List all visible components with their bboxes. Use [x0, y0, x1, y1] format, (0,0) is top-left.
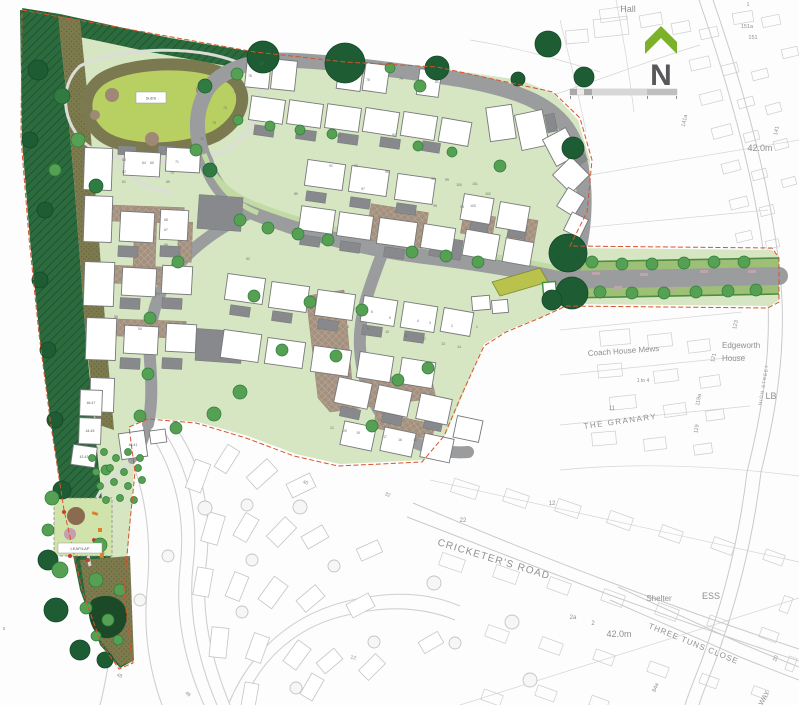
plot-number: 72 — [200, 137, 204, 141]
tree-icon — [97, 483, 104, 490]
base-building — [763, 549, 786, 566]
play-equipment — [98, 528, 102, 532]
plot-number: 17 — [383, 435, 387, 439]
base-building — [721, 160, 741, 174]
refuge-marking — [614, 286, 622, 289]
os-map-label: 119a — [695, 393, 703, 407]
outline-tree-icon — [328, 560, 340, 572]
parcel-line — [430, 480, 799, 562]
site-label: 46-47 — [87, 401, 96, 405]
plot-number: 2 — [451, 324, 453, 328]
plot-number: 6 — [371, 310, 373, 314]
tree-icon — [125, 483, 132, 490]
base-road-edge — [413, 503, 799, 649]
proposed-house — [310, 345, 351, 376]
tree-icon — [207, 407, 221, 421]
tree-icon — [422, 362, 434, 374]
tree-icon — [406, 246, 418, 258]
plot-number: 63 — [122, 158, 126, 162]
plot-number: 79 — [399, 77, 403, 81]
tree-icon — [137, 455, 144, 462]
refuge-marking — [748, 270, 756, 273]
base-building — [761, 14, 781, 28]
tree-icon — [626, 287, 638, 299]
plot-number: 70 — [170, 171, 174, 175]
proposed-house — [83, 261, 115, 306]
plot-number: 9 — [367, 327, 369, 331]
base-building — [591, 431, 616, 446]
estate-road — [163, 430, 217, 705]
plot-number: 96 — [385, 170, 389, 174]
parking-bay — [118, 245, 139, 257]
plot-number: 1 — [476, 325, 478, 329]
estate-building — [233, 512, 259, 542]
north-arrow-letter: N — [650, 59, 672, 92]
proposed-house — [248, 96, 285, 124]
tree-icon — [292, 228, 304, 240]
proposed-house — [471, 295, 490, 311]
plot-number: 10 — [385, 330, 389, 334]
estate-building — [418, 631, 444, 653]
os-map-label: LB — [765, 391, 776, 401]
tree-icon — [89, 179, 103, 193]
tree-icon — [45, 491, 59, 505]
mud-patch — [105, 88, 119, 102]
base-building — [729, 196, 749, 210]
tree-icon — [139, 477, 146, 484]
proposed-house — [356, 352, 394, 383]
os-map-label: 2 — [591, 621, 595, 627]
estate-road — [242, 609, 455, 705]
tree-icon — [494, 160, 506, 172]
base-building — [735, 230, 753, 242]
tree-icon — [231, 68, 243, 80]
plot-number: 89 — [294, 192, 298, 196]
tree-icon — [586, 256, 598, 268]
play-mound — [68, 554, 72, 558]
plot-number: 74 — [223, 106, 227, 110]
site-label: 44-45 — [86, 429, 95, 433]
mature-tree-icon — [542, 290, 562, 310]
os-map-label: 151 — [748, 35, 757, 41]
proposed-house — [496, 202, 530, 233]
tree-icon — [678, 257, 690, 269]
plot-number: 76 — [248, 74, 252, 78]
mature-tree-icon — [425, 56, 449, 80]
os-map-label: 12 — [350, 655, 357, 662]
plot-number: 103 — [470, 204, 476, 208]
plot-number: 93 — [354, 164, 358, 168]
proposed-house — [324, 104, 361, 132]
base-building — [711, 124, 733, 140]
tree-icon — [52, 562, 68, 578]
plot-number: 97 — [361, 187, 365, 191]
parcel-line — [553, 45, 700, 95]
proposed-house — [149, 429, 167, 444]
proposed-house — [121, 267, 156, 297]
base-building — [647, 661, 670, 678]
outline-tree-icon — [449, 637, 461, 649]
os-map-label: 46 — [184, 690, 192, 698]
base-building — [751, 168, 768, 181]
tree-icon — [144, 312, 156, 324]
tree-icon — [111, 479, 118, 486]
tree-icon — [750, 284, 762, 296]
outline-tree-icon — [236, 606, 248, 618]
proposed-house — [376, 217, 417, 248]
tree-icon — [121, 469, 128, 476]
os-map-label: 12 — [549, 501, 556, 507]
plot-number: 99 — [445, 178, 449, 182]
base-building — [732, 10, 754, 24]
plot-number: 55 — [114, 315, 118, 319]
os-map-label: 42.0m — [747, 143, 772, 153]
base-building — [699, 90, 723, 106]
estate-building — [245, 633, 269, 664]
tree-icon — [89, 455, 96, 462]
plot-number: 53 — [156, 292, 160, 296]
scale-bar-segment — [584, 89, 592, 95]
estate-building — [359, 654, 386, 681]
os-map-label: CRICKETER'S ROAD — [436, 537, 551, 582]
proposed-house — [314, 289, 355, 320]
plot-number: 8 — [347, 325, 349, 329]
os-map-label: 151a — [741, 24, 754, 30]
plot-number: 13 — [441, 342, 445, 346]
estate-building — [225, 572, 249, 602]
plot-number: 4 — [417, 319, 419, 323]
proposed-house — [486, 104, 516, 141]
parcel-line — [560, 356, 746, 375]
plot-number: 91 — [329, 164, 333, 168]
proposed-house — [502, 238, 534, 266]
os-map-label: 121 — [710, 353, 718, 363]
proposed-house — [161, 265, 192, 295]
base-building — [643, 437, 666, 452]
tree-icon — [330, 350, 342, 362]
estate-building — [241, 682, 259, 705]
os-map-label: 119 — [693, 424, 700, 434]
plot-number: 101 — [472, 182, 478, 186]
os-map-label: 1 to 4 — [637, 378, 650, 384]
site-plan-drawing: SuDSLEAP/LAP46-4744-4542-4340-4161626364… — [0, 0, 799, 705]
base-building — [607, 510, 634, 530]
plot-number: 61 — [122, 180, 126, 184]
os-map-label: Hall — [620, 4, 636, 14]
proposed-house — [438, 118, 472, 147]
base-building — [779, 595, 793, 613]
play-mound — [62, 510, 66, 514]
outline-tree-icon — [246, 554, 258, 566]
plot-number: 78 — [366, 78, 370, 82]
tree-icon — [135, 465, 142, 472]
base-building — [781, 46, 799, 58]
base-building — [653, 369, 678, 384]
tree-icon — [738, 256, 750, 268]
tree-icon — [413, 141, 423, 151]
proposed-house — [304, 159, 345, 190]
tree-icon — [327, 129, 337, 139]
mature-tree-icon — [70, 640, 90, 660]
base-building — [773, 138, 789, 150]
base-building — [539, 637, 564, 656]
plot-number: 77 — [260, 62, 264, 66]
tree-icon — [113, 455, 120, 462]
proposed-house — [348, 165, 389, 196]
plot-number: 82 — [392, 133, 396, 137]
tree-icon — [49, 164, 61, 176]
plot-number: 98 — [431, 177, 435, 181]
base-building — [765, 239, 779, 250]
tree-icon — [440, 250, 452, 262]
base-building — [781, 176, 797, 187]
tree-icon — [616, 258, 628, 270]
plot-number: 102 — [485, 192, 491, 196]
tree-icon — [170, 422, 182, 434]
outline-tree-icon — [241, 499, 253, 511]
site-label: SuDS — [146, 96, 157, 101]
road — [566, 276, 779, 280]
plot-number: 64 — [142, 161, 146, 165]
parking-bay — [162, 297, 183, 309]
scale-bar-segment — [570, 89, 577, 95]
estate-building — [296, 585, 325, 613]
scale-tick — [647, 96, 648, 99]
tree-icon — [93, 469, 100, 476]
os-map-label: 42.0m — [606, 629, 631, 639]
estate-building — [300, 673, 324, 701]
plot-number: 83 — [337, 134, 341, 138]
scale-tick — [570, 96, 571, 99]
base-building — [503, 488, 530, 508]
tree-icon — [113, 635, 123, 645]
tree-icon — [265, 121, 275, 131]
plot-number: 71 — [175, 160, 179, 164]
mature-tree-icon — [40, 342, 56, 358]
base-building — [711, 537, 736, 556]
base-building — [705, 409, 724, 421]
tree-icon — [472, 256, 484, 268]
estate-building — [356, 540, 382, 561]
tree-icon — [392, 374, 404, 386]
plot-number: 95 — [433, 204, 437, 208]
estate-building — [266, 517, 296, 548]
mature-tree-icon — [44, 598, 68, 622]
os-map-label: THREE TUNS CLOSE — [647, 622, 740, 666]
map-layers: SuDSLEAP/LAP46-4744-4542-4340-4161626364… — [3, 0, 799, 705]
parcel-line — [460, 598, 799, 705]
parking-bay — [197, 195, 243, 232]
base-building — [601, 589, 626, 608]
os-map-label: 2a — [570, 615, 577, 621]
base-building — [687, 339, 710, 354]
base-building — [565, 29, 588, 44]
proposed-house — [220, 329, 262, 362]
os-map-label: THE GRANARY — [583, 412, 658, 431]
os-map-label: 84a — [652, 681, 661, 693]
plot-number: 73 — [212, 121, 216, 125]
base-building — [535, 685, 558, 702]
base-road-edge — [407, 517, 799, 661]
mud-patch — [90, 110, 100, 120]
scale-bar-segment — [647, 89, 677, 95]
tree-icon — [54, 88, 70, 104]
parking-bay — [162, 357, 183, 369]
tree-icon — [366, 420, 378, 432]
os-map-label: 11 — [609, 406, 616, 412]
mature-tree-icon — [37, 202, 53, 218]
plot-number: 11 — [404, 334, 408, 338]
tree-icon — [172, 256, 184, 268]
outline-tree-icon — [198, 501, 212, 515]
refuge-marking — [700, 270, 708, 273]
plot-number: 94 — [460, 205, 464, 209]
plot-number: 100 — [456, 183, 462, 187]
mature-tree-icon — [562, 137, 584, 159]
proposed-house — [119, 211, 155, 243]
tree-icon — [203, 163, 217, 177]
estate-building — [209, 627, 229, 659]
plot-number: 21 — [330, 426, 334, 430]
plot-number: 14 — [457, 345, 461, 349]
plot-number: 15 — [413, 438, 417, 442]
tree-icon — [102, 614, 114, 626]
tree-icon — [42, 524, 54, 536]
proposed-house — [394, 173, 435, 204]
base-building — [593, 649, 616, 666]
tree-icon — [248, 290, 260, 302]
plot-number: 75 — [233, 90, 237, 94]
proposed-house — [400, 302, 438, 333]
tree-icon — [190, 144, 202, 156]
tree-icon — [103, 497, 110, 504]
mature-tree-icon — [549, 234, 587, 272]
mature-tree-icon — [247, 41, 279, 73]
os-map-label: Edgeworth — [722, 341, 760, 350]
base-building — [693, 443, 712, 455]
proposed-house — [268, 281, 309, 312]
tree-icon — [80, 602, 92, 614]
outline-tree-icon — [290, 682, 302, 694]
outline-tree-icon — [293, 500, 307, 514]
os-map-label: House — [722, 354, 746, 363]
base-building — [743, 130, 760, 143]
base-building — [737, 96, 755, 109]
tree-icon — [142, 368, 154, 380]
tree-icon — [658, 287, 670, 299]
mature-tree-icon — [22, 132, 38, 148]
refuge-marking — [592, 272, 600, 275]
base-building — [699, 375, 720, 389]
tree-icon — [101, 449, 108, 456]
plot-number: 66 — [164, 243, 168, 247]
plot-number: 65 — [150, 161, 154, 165]
parking-bay — [120, 297, 141, 309]
plot-number: 12 — [422, 337, 426, 341]
mature-tree-icon — [97, 652, 113, 668]
base-building — [450, 478, 479, 499]
site-plan-canvas: SuDSLEAP/LAP46-4744-4542-4340-4161626364… — [0, 0, 799, 705]
tree-icon — [356, 304, 368, 316]
estate-buildings — [185, 444, 443, 705]
tree-icon — [322, 234, 334, 246]
estate-building — [283, 640, 311, 670]
play-mound — [67, 507, 85, 525]
scale-tick — [676, 96, 677, 99]
proposed-house — [83, 196, 113, 243]
plot-number: 16 — [398, 438, 402, 442]
outline-tree-icon — [505, 615, 519, 629]
proposed-house — [462, 229, 500, 261]
legend-group: N — [570, 26, 677, 99]
proposed-house — [420, 224, 455, 253]
tree-icon — [131, 497, 138, 504]
mature-tree-icon — [28, 60, 48, 80]
proposed-house — [298, 206, 335, 234]
base-building — [671, 20, 691, 34]
proposed-house — [85, 317, 116, 360]
tree-icon — [198, 79, 212, 93]
site-label: 40-41 — [129, 443, 138, 447]
parcel-line — [560, 312, 742, 330]
estate-building — [201, 512, 226, 546]
mature-tree-icon — [574, 67, 594, 87]
tree-icon — [233, 115, 243, 125]
parcel-line — [560, 466, 799, 476]
os-map-label: 141a — [681, 113, 690, 127]
base-building — [599, 329, 630, 347]
outline-tree-icon — [427, 576, 441, 590]
tree-icon — [107, 465, 114, 472]
tree-icon — [708, 256, 720, 268]
plot-number: 69 — [166, 180, 170, 184]
tree-icon — [71, 133, 85, 147]
base-building — [765, 102, 782, 115]
base-building — [659, 525, 684, 544]
tree-icon — [276, 344, 288, 356]
tree-icon — [304, 296, 316, 308]
proposed-house — [286, 100, 323, 128]
plot-number: 81 — [435, 80, 439, 84]
estate-building — [258, 576, 288, 609]
parking-bay — [120, 357, 141, 369]
plot-number: 3 — [429, 321, 431, 325]
proposed-house — [453, 416, 483, 443]
tree-icon — [447, 147, 457, 157]
plot-number: 67 — [164, 228, 168, 232]
outline-tree-icon — [523, 673, 537, 687]
base-building — [699, 673, 719, 689]
proposed-house — [440, 308, 474, 337]
mud-patch — [145, 132, 159, 146]
tree-icon — [233, 385, 247, 399]
plot-number: 19 — [356, 431, 360, 435]
scale-tick — [592, 96, 593, 99]
base-building — [639, 12, 663, 28]
scale-bar-segment — [592, 89, 647, 95]
tree-icon — [262, 222, 274, 234]
proposed-house — [400, 111, 437, 140]
os-map-label: 1 — [747, 2, 750, 8]
os-map-label: 141 — [773, 126, 781, 136]
tree-icon — [125, 449, 132, 456]
play-mound — [86, 558, 90, 562]
tree-icon — [690, 286, 702, 298]
outline-tree-icon — [368, 636, 380, 648]
plot-number: 7 — [354, 307, 356, 311]
mature-tree-icon — [535, 31, 561, 57]
tree-icon — [234, 214, 246, 226]
